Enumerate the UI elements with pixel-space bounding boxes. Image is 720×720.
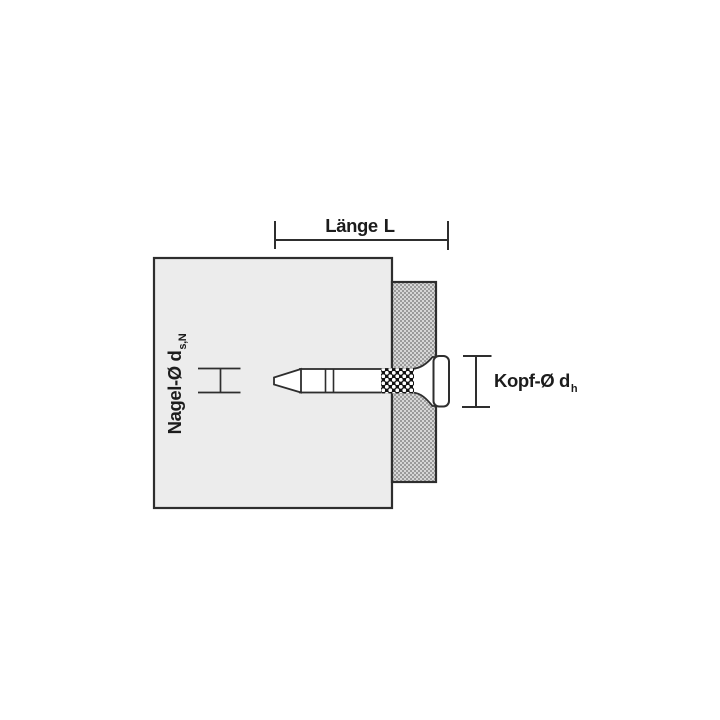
length-label: LängeL <box>325 215 394 236</box>
technical-diagram: LängeL Nagel-Ø ds,N Kopf-Ø dh <box>0 0 720 720</box>
head-diameter-dimension <box>462 356 492 407</box>
nail-diameter-label-subscript: s,N <box>177 333 189 349</box>
nail-knurled-zone <box>381 368 414 393</box>
length-label-word: Länge <box>325 215 378 236</box>
nail-diameter-label-main: Nagel-Ø d <box>164 350 185 434</box>
head-diameter-label-subscript: h <box>571 383 578 395</box>
head-diameter-label: Kopf-Ø dh <box>494 370 578 395</box>
diagram-canvas: LängeL Nagel-Ø ds,N Kopf-Ø dh <box>0 0 720 720</box>
length-label-symbol: L <box>384 215 395 236</box>
nail-head-flange <box>434 356 450 407</box>
head-diameter-label-main: Kopf-Ø d <box>494 370 570 391</box>
